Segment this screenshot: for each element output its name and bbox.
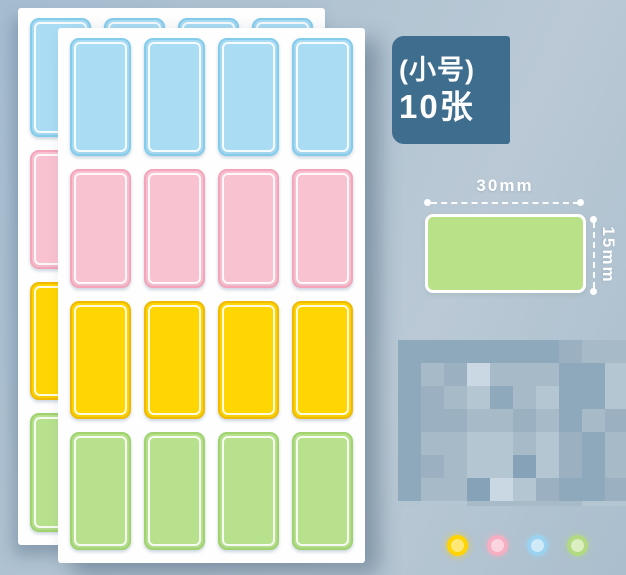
mosaic-cell	[536, 501, 559, 506]
mosaic-cell	[467, 340, 490, 363]
mosaic-cell	[536, 455, 559, 478]
mosaic-cell	[559, 386, 582, 409]
mosaic-cell	[582, 478, 605, 501]
mosaic-cell	[421, 432, 444, 455]
size-count-badge: (小号) 10张	[392, 36, 510, 144]
sticker-label-blue	[218, 38, 279, 156]
mosaic-cell	[490, 363, 513, 386]
mosaic-cell	[559, 340, 582, 363]
mosaic-cell	[421, 478, 444, 501]
sticker-label-pink	[292, 169, 353, 287]
mosaic-cell	[421, 409, 444, 432]
mosaic-cell	[605, 340, 626, 363]
sticker-label-yellow	[144, 301, 205, 419]
mosaic-cell	[398, 386, 421, 409]
mosaic-cell	[421, 363, 444, 386]
mosaic-cell	[536, 363, 559, 386]
mosaic-cell	[605, 501, 626, 506]
mosaic-cell	[444, 478, 467, 501]
mosaic-cell	[536, 432, 559, 455]
color-dot-yellow	[447, 535, 468, 556]
mosaic-cell	[490, 455, 513, 478]
size-swatch	[425, 214, 586, 293]
mosaic-cell	[398, 501, 421, 506]
height-dimension-label: 15mm	[598, 225, 618, 285]
mosaic-cell	[559, 409, 582, 432]
mosaic-cell	[467, 501, 490, 506]
mosaic-cell	[582, 501, 605, 506]
sheet-count-label: 10张	[399, 88, 510, 126]
mosaic-cell	[467, 363, 490, 386]
color-dot-pink	[487, 535, 508, 556]
sticker-label-pink	[70, 169, 131, 287]
mosaic-cell	[490, 386, 513, 409]
mosaic-cell	[444, 363, 467, 386]
mosaic-cell	[536, 386, 559, 409]
dimension-endpoint-dot	[590, 288, 597, 295]
mosaic-cell	[398, 455, 421, 478]
color-dot-green	[567, 535, 588, 556]
mosaic-cell	[421, 501, 444, 506]
mosaic-cell	[582, 386, 605, 409]
mosaic-cell	[605, 432, 626, 455]
mosaic-cell	[582, 455, 605, 478]
sticker-label-green	[144, 432, 205, 550]
mosaic-cell	[582, 363, 605, 386]
mosaic-cell	[398, 432, 421, 455]
pixelated-watermark	[398, 340, 626, 506]
mosaic-cell	[513, 409, 536, 432]
mosaic-cell	[490, 501, 513, 506]
sticker-label-pink	[144, 169, 205, 287]
mosaic-cell	[536, 409, 559, 432]
mosaic-cell	[605, 455, 626, 478]
mosaic-cell	[467, 409, 490, 432]
mosaic-cell	[490, 478, 513, 501]
mosaic-cell	[398, 340, 421, 363]
mosaic-cell	[513, 363, 536, 386]
color-dot-blue	[527, 535, 548, 556]
mosaic-cell	[582, 340, 605, 363]
sticker-label-pink	[218, 169, 279, 287]
mosaic-cell	[444, 501, 467, 506]
mosaic-cell	[605, 386, 626, 409]
mosaic-cell	[582, 432, 605, 455]
mosaic-cell	[490, 432, 513, 455]
color-dots	[447, 535, 588, 556]
dimension-endpoint-dot	[590, 216, 597, 223]
sticker-label-yellow	[218, 301, 279, 419]
mosaic-cell	[605, 409, 626, 432]
mosaic-cell	[605, 363, 626, 386]
mosaic-cell	[490, 340, 513, 363]
mosaic-cell	[605, 478, 626, 501]
mosaic-cell	[536, 340, 559, 363]
product-image: (小号) 10张 30mm 15mm	[0, 0, 626, 575]
sticker-label-yellow	[70, 301, 131, 419]
mosaic-cell	[513, 340, 536, 363]
sticker-label-green	[70, 432, 131, 550]
mosaic-cell	[421, 386, 444, 409]
mosaic-cell	[421, 455, 444, 478]
height-dimension-line	[593, 222, 595, 288]
mosaic-cell	[421, 340, 444, 363]
mosaic-cell	[444, 340, 467, 363]
sticker-label-green	[292, 432, 353, 550]
mosaic-cell	[559, 363, 582, 386]
mosaic-cell	[536, 478, 559, 501]
mosaic-cell	[559, 432, 582, 455]
dimension-endpoint-dot	[424, 199, 431, 206]
mosaic-cell	[467, 432, 490, 455]
mosaic-cell	[513, 432, 536, 455]
mosaic-cell	[444, 432, 467, 455]
sticker-label-blue	[70, 38, 131, 156]
mosaic-cell	[582, 409, 605, 432]
size-label: (小号)	[399, 54, 510, 88]
mosaic-cell	[513, 386, 536, 409]
sticker-label-blue	[144, 38, 205, 156]
sticker-label-blue	[292, 38, 353, 156]
mosaic-cell	[559, 455, 582, 478]
mosaic-cell	[444, 386, 467, 409]
mosaic-cell	[467, 386, 490, 409]
sticker-label-yellow	[292, 301, 353, 419]
mosaic-cell	[513, 455, 536, 478]
mosaic-cell	[398, 478, 421, 501]
mosaic-cell	[398, 363, 421, 386]
dimension-endpoint-dot	[577, 199, 584, 206]
mosaic-cell	[467, 455, 490, 478]
mosaic-cell	[513, 478, 536, 501]
mosaic-cell	[444, 455, 467, 478]
mosaic-cell	[559, 501, 582, 506]
mosaic-cell	[467, 478, 490, 501]
mosaic-cell	[490, 409, 513, 432]
label-sheet-front	[58, 28, 365, 563]
width-dimension-label: 30mm	[425, 176, 585, 196]
mosaic-cell	[444, 409, 467, 432]
mosaic-cell	[398, 409, 421, 432]
sticker-label-green	[218, 432, 279, 550]
width-dimension-line	[431, 202, 579, 204]
mosaic-cell	[559, 478, 582, 501]
mosaic-cell	[513, 501, 536, 506]
